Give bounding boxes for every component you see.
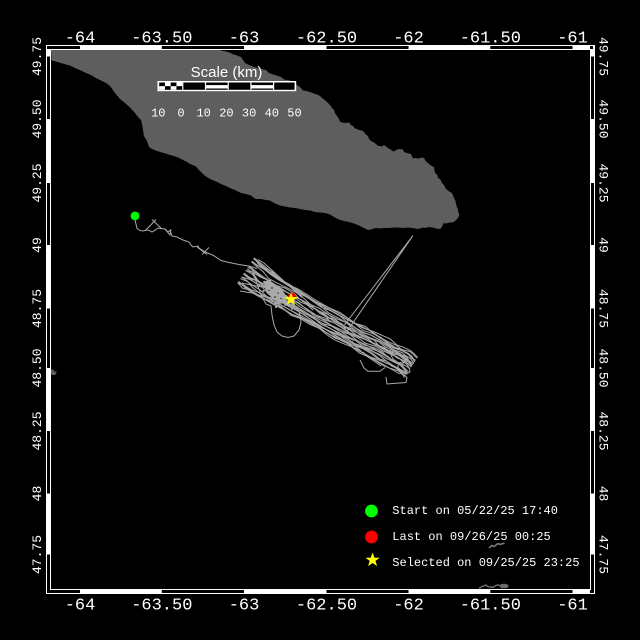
svg-text:-61: -61 (557, 30, 588, 49)
svg-text:49.25: 49.25 (596, 163, 611, 202)
svg-text:0: 0 (177, 107, 184, 121)
svg-text:-64: -64 (65, 30, 96, 49)
svg-text:-62.50: -62.50 (296, 597, 357, 616)
svg-text:48: 48 (596, 486, 611, 502)
svg-text:48.75: 48.75 (596, 289, 611, 328)
svg-text:49.25: 49.25 (30, 163, 45, 202)
svg-text:-63.50: -63.50 (131, 597, 192, 616)
svg-text:-62: -62 (393, 30, 424, 49)
svg-text:49: 49 (30, 237, 45, 253)
svg-text:49.50: 49.50 (596, 99, 611, 138)
svg-text:40: 40 (265, 107, 279, 121)
svg-text:30: 30 (242, 107, 256, 121)
svg-text:49.75: 49.75 (30, 37, 45, 76)
svg-text:Start on 05/22/25 17:40: Start on 05/22/25 17:40 (392, 504, 558, 518)
svg-text:-62: -62 (393, 597, 424, 616)
svg-text:-63.50: -63.50 (131, 30, 192, 49)
svg-text:-61.50: -61.50 (460, 30, 521, 49)
svg-text:49: 49 (596, 237, 611, 253)
svg-text:50: 50 (287, 107, 301, 121)
svg-text:-61: -61 (557, 597, 588, 616)
svg-text:48.50: 48.50 (596, 348, 611, 387)
svg-text:-63: -63 (229, 30, 260, 49)
svg-text:48.25: 48.25 (596, 411, 611, 450)
svg-text:Scale (km): Scale (km) (191, 64, 263, 81)
svg-text:-63: -63 (229, 597, 260, 616)
svg-text:49.75: 49.75 (596, 37, 611, 76)
svg-text:-62.50: -62.50 (296, 30, 357, 49)
svg-text:Selected on 09/25/25 23:25: Selected on 09/25/25 23:25 (392, 556, 579, 570)
svg-text:-61.50: -61.50 (460, 597, 521, 616)
svg-text:48.75: 48.75 (30, 289, 45, 328)
svg-text:20: 20 (219, 107, 233, 121)
svg-text:-64: -64 (65, 597, 96, 616)
svg-text:47.75: 47.75 (596, 535, 611, 574)
svg-text:48.50: 48.50 (30, 348, 45, 387)
svg-text:49.50: 49.50 (30, 99, 45, 138)
svg-text:Last on 09/26/25 00:25: Last on 09/26/25 00:25 (392, 530, 550, 544)
svg-text:48: 48 (30, 486, 45, 502)
svg-text:10: 10 (196, 107, 210, 121)
svg-text:10: 10 (151, 107, 165, 121)
svg-text:48.25: 48.25 (30, 411, 45, 450)
svg-text:47.75: 47.75 (30, 535, 45, 574)
